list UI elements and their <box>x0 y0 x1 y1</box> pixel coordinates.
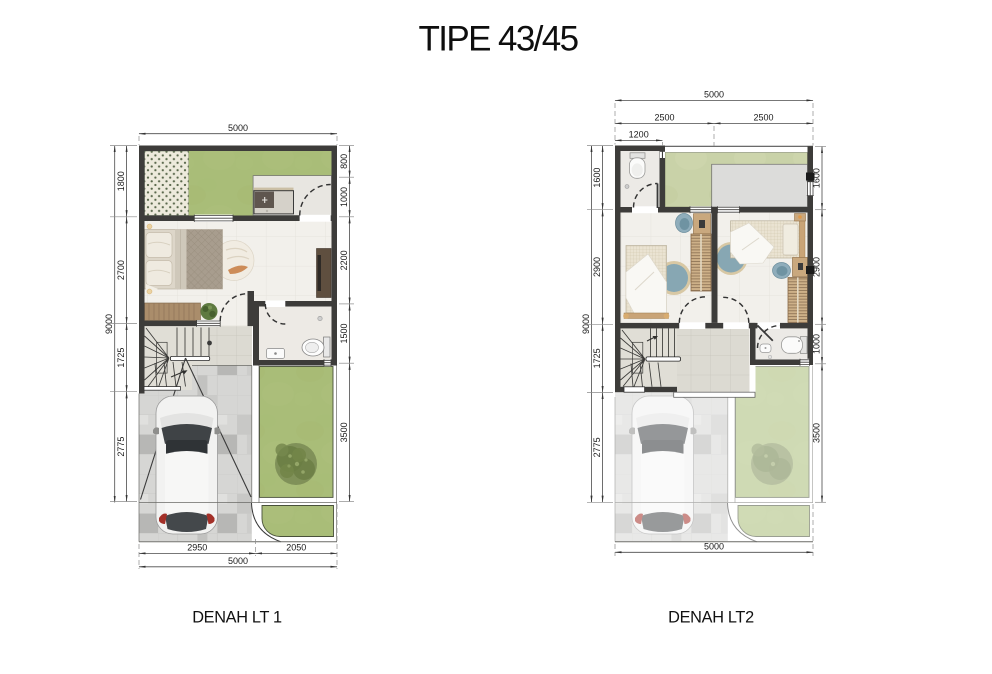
svg-text:3500: 3500 <box>812 423 822 443</box>
svg-text:2775: 2775 <box>116 437 126 457</box>
svg-text:2200: 2200 <box>339 250 349 270</box>
svg-text:5000: 5000 <box>228 556 248 566</box>
svg-text:DENAH LT 1: DENAH LT 1 <box>192 609 282 627</box>
svg-text:1725: 1725 <box>592 348 602 368</box>
svg-text:2950: 2950 <box>187 543 207 553</box>
svg-text:1000: 1000 <box>339 187 349 207</box>
svg-text:2500: 2500 <box>753 113 773 123</box>
svg-text:9000: 9000 <box>104 314 114 334</box>
svg-text:5000: 5000 <box>228 123 248 133</box>
svg-text:1725: 1725 <box>116 348 126 368</box>
svg-text:2500: 2500 <box>654 113 674 123</box>
svg-text:1600: 1600 <box>592 168 602 188</box>
svg-text:800: 800 <box>339 154 349 169</box>
svg-text:2775: 2775 <box>592 437 602 457</box>
svg-text:1600: 1600 <box>812 168 822 188</box>
svg-text:DENAH LT2: DENAH LT2 <box>668 609 754 627</box>
svg-text:1500: 1500 <box>339 323 349 343</box>
svg-text:2900: 2900 <box>592 257 602 277</box>
svg-text:1000: 1000 <box>812 334 822 354</box>
svg-text:5000: 5000 <box>704 542 724 552</box>
svg-text:TIPE 43/45: TIPE 43/45 <box>418 20 577 59</box>
svg-text:2050: 2050 <box>286 543 306 553</box>
svg-text:2700: 2700 <box>116 260 126 280</box>
svg-text:1800: 1800 <box>116 171 126 191</box>
svg-text:1200: 1200 <box>629 130 649 140</box>
svg-text:5000: 5000 <box>704 90 724 100</box>
svg-text:3500: 3500 <box>339 422 349 442</box>
svg-text:2900: 2900 <box>812 257 822 277</box>
